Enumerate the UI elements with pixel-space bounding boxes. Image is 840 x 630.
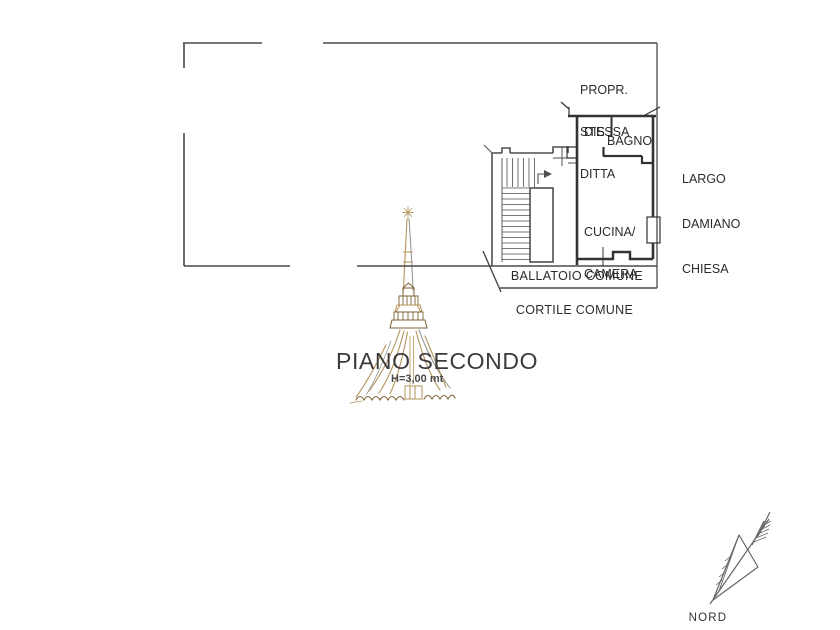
walkway-label: BALLATOIO COMUNE	[497, 269, 657, 283]
stair-direction-arrow	[538, 170, 552, 184]
street-line2: DAMIANO	[682, 217, 740, 232]
ceiling-height-note: H=3,00 mt	[391, 373, 443, 385]
floor-title: PIANO SECONDO	[336, 348, 538, 375]
courtyard-label: CORTILE COMUNE	[492, 303, 657, 317]
room-label-kitchen-bedroom: CUCINA/ CAMERA	[584, 197, 637, 309]
staircase	[484, 145, 578, 266]
north-label: NORD	[668, 612, 748, 624]
floor-plan-drawing	[0, 0, 840, 630]
street-line3: CHIESA	[682, 262, 740, 277]
floor-plan-page: PROPR. STESSA DITTA LARGO DAMIANO CHIESA…	[0, 0, 840, 630]
adjacent-property-line3: DITTA	[580, 167, 629, 181]
street-line1: LARGO	[682, 172, 740, 187]
room-label-disimpegno: DIS	[584, 125, 605, 139]
kitchen-bedroom-line1: CUCINA/	[584, 225, 637, 239]
street-name-label: LARGO DAMIANO CHIESA	[682, 142, 740, 307]
north-arrow	[710, 512, 771, 604]
adjacent-property-line1: PROPR.	[580, 83, 629, 97]
room-label-bathroom: BAGNO	[607, 134, 652, 148]
